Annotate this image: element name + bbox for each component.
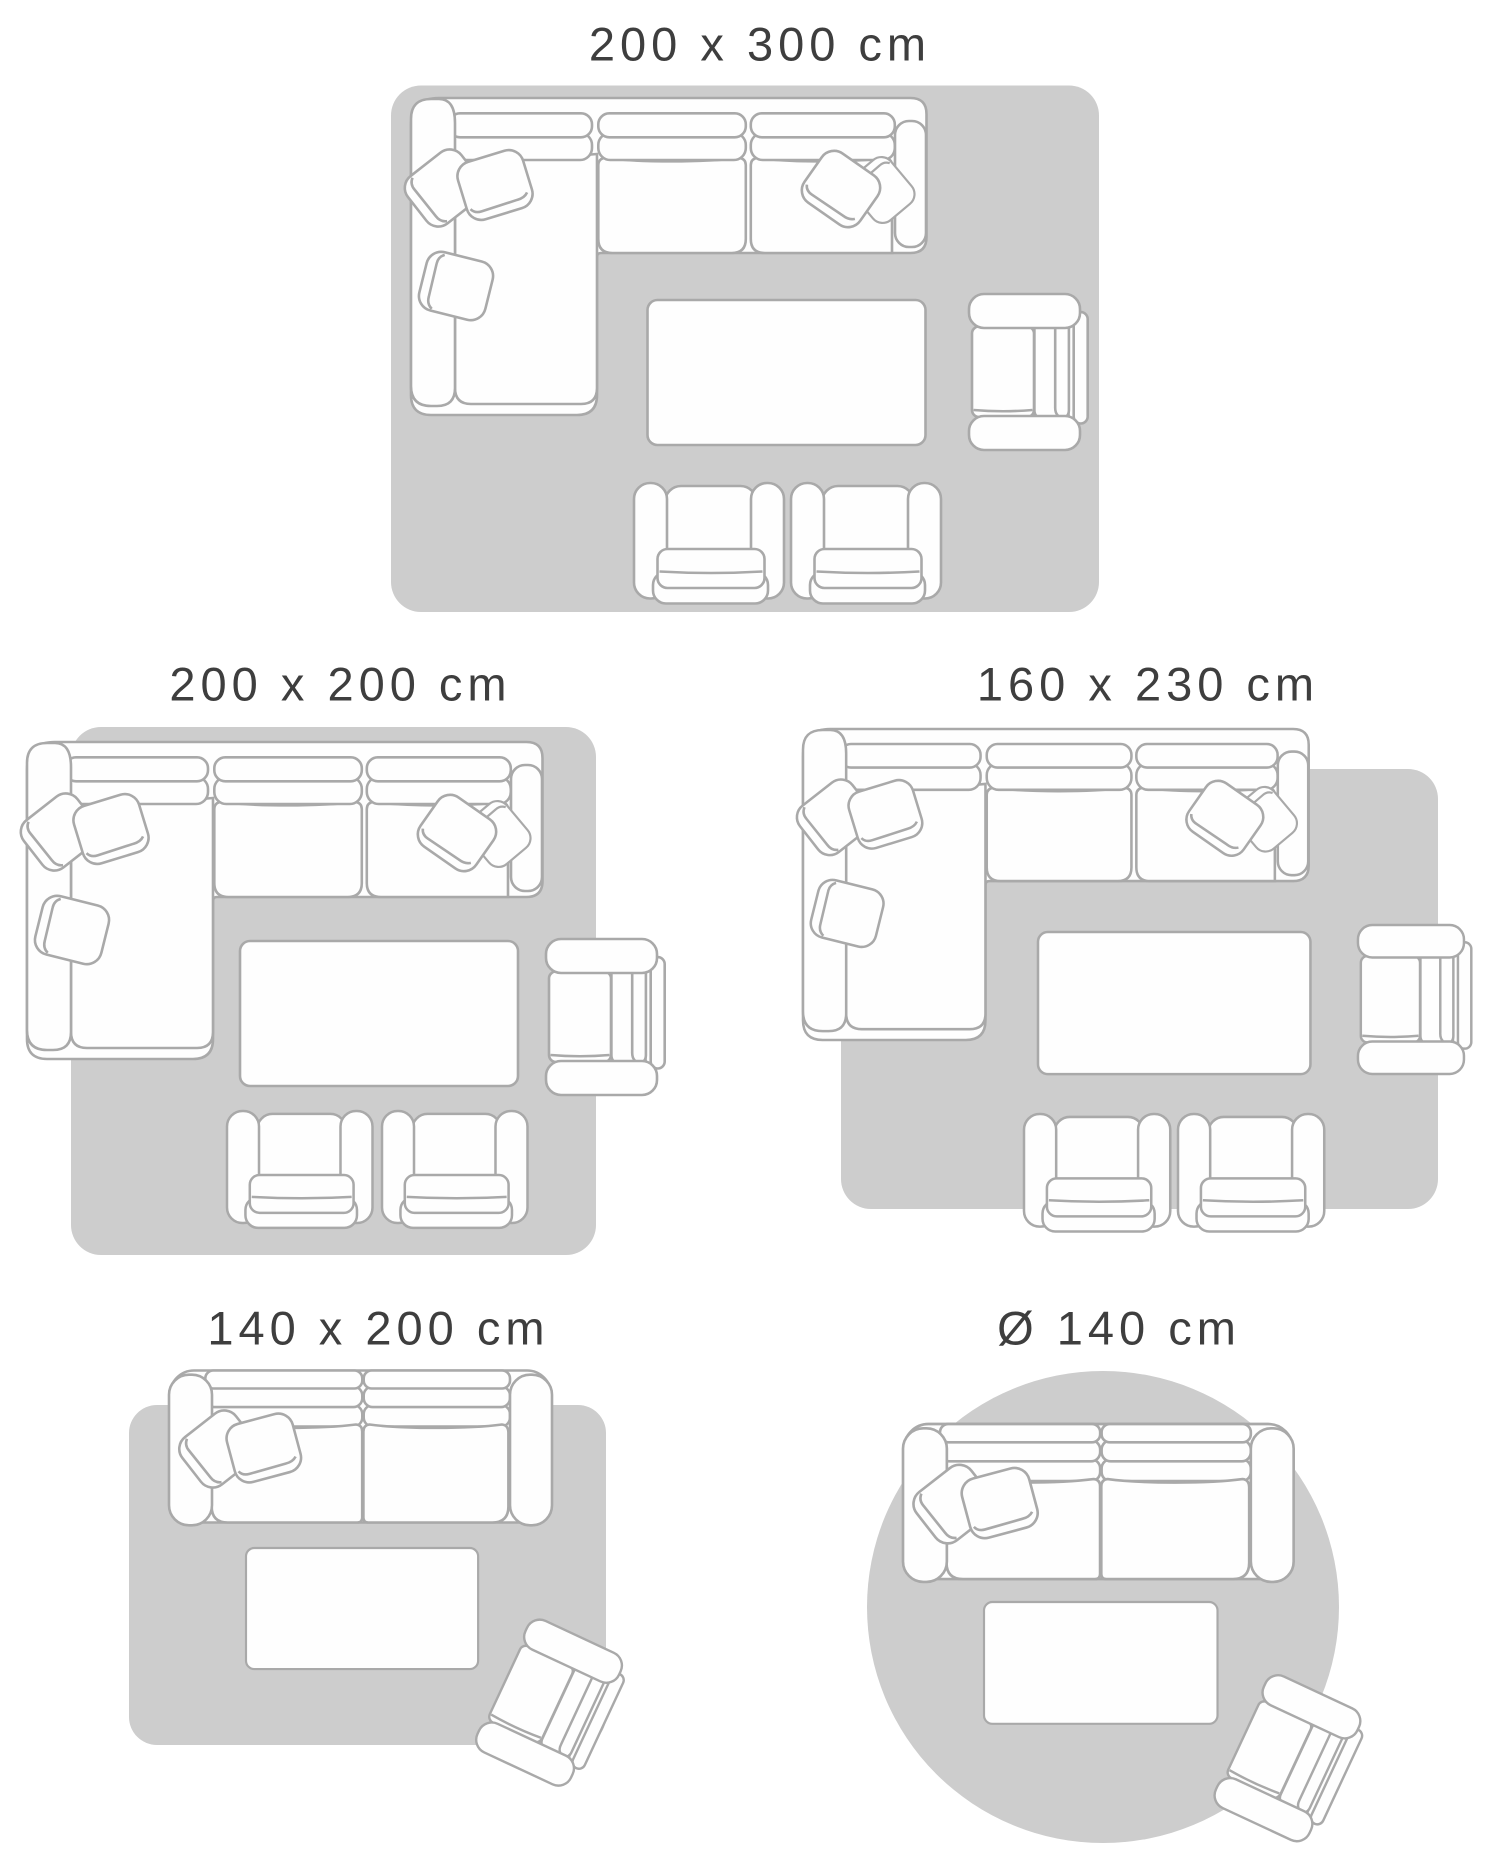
svg-text:200 x 300 cm: 200 x 300 cm [589,18,931,71]
svg-text:Ø 140 cm: Ø 140 cm [997,1302,1241,1355]
svg-text:200 x 200 cm: 200 x 200 cm [169,658,511,711]
svg-text:140 x 200 cm: 140 x 200 cm [207,1302,549,1355]
svg-text:160 x 230 cm: 160 x 230 cm [977,658,1319,711]
